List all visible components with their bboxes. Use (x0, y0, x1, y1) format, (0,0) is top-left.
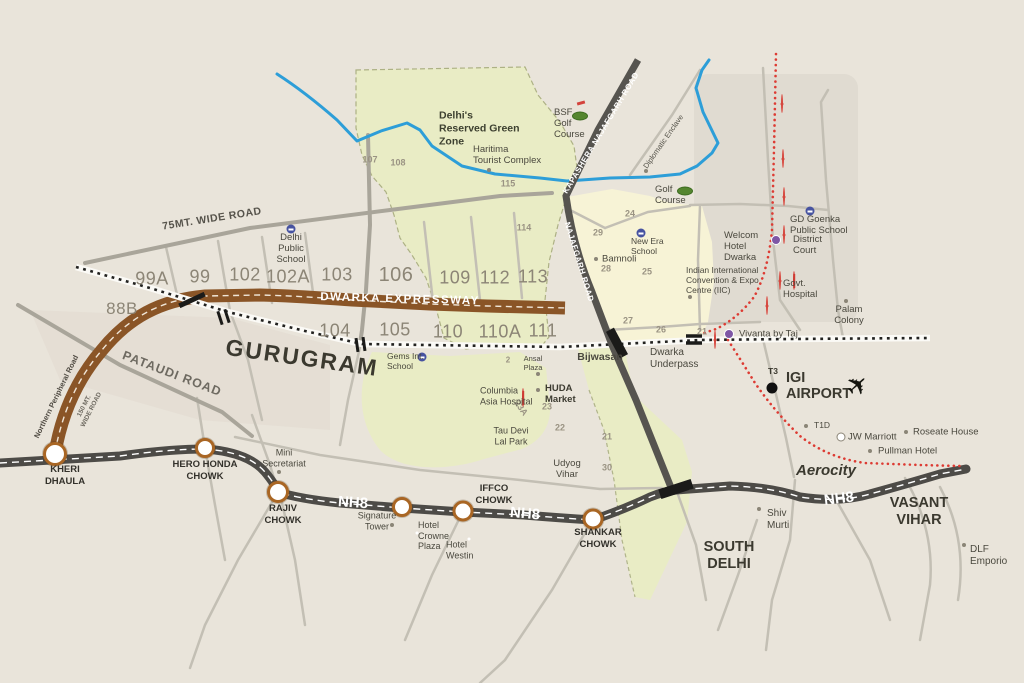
junction-node-hero-honda-chowk (195, 438, 215, 458)
junction-node-kheri-dhaula (43, 442, 67, 466)
red-mark (577, 101, 586, 106)
region-dwarka-sectors (567, 189, 714, 342)
region-dwarka-urban (694, 74, 858, 322)
region-green-park (362, 352, 550, 467)
junction-node-shankar-chowk (583, 509, 604, 530)
junction-node-rajiv-chowk (267, 481, 289, 503)
map-canvas (0, 0, 1024, 683)
region-green-border-strip (578, 346, 692, 600)
dwarka-expressway-map: 99A 99 102 102A 103 106 109 112 113 88B … (0, 0, 1024, 683)
junction-node-iffco-chowk (453, 501, 474, 522)
junction-node-signature-tower (392, 497, 412, 517)
road-nh8 (0, 449, 966, 520)
road-sector-vertical (360, 135, 370, 344)
metro-line-airport (728, 340, 962, 466)
